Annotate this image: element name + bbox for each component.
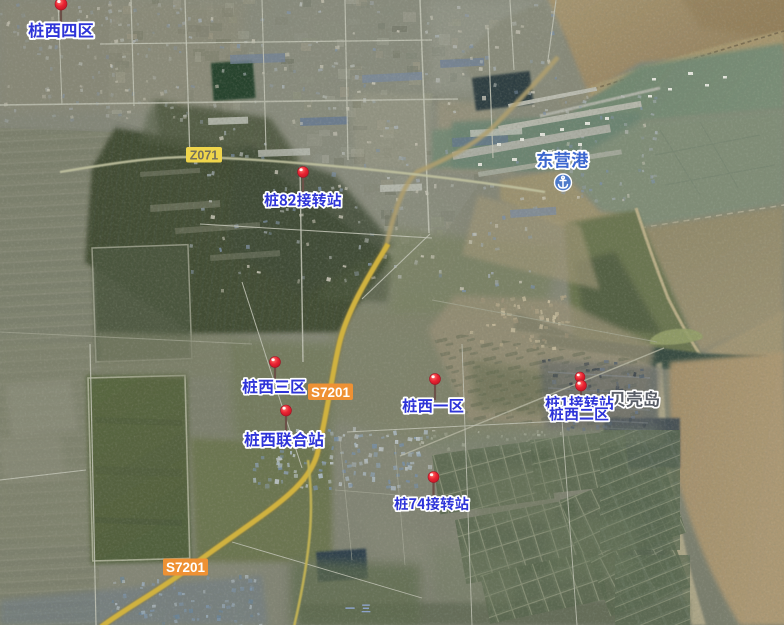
svg-text:Z071: Z071 bbox=[190, 149, 219, 163]
svg-text:S7201: S7201 bbox=[166, 560, 206, 575]
svg-text:S7201: S7201 bbox=[311, 385, 351, 400]
